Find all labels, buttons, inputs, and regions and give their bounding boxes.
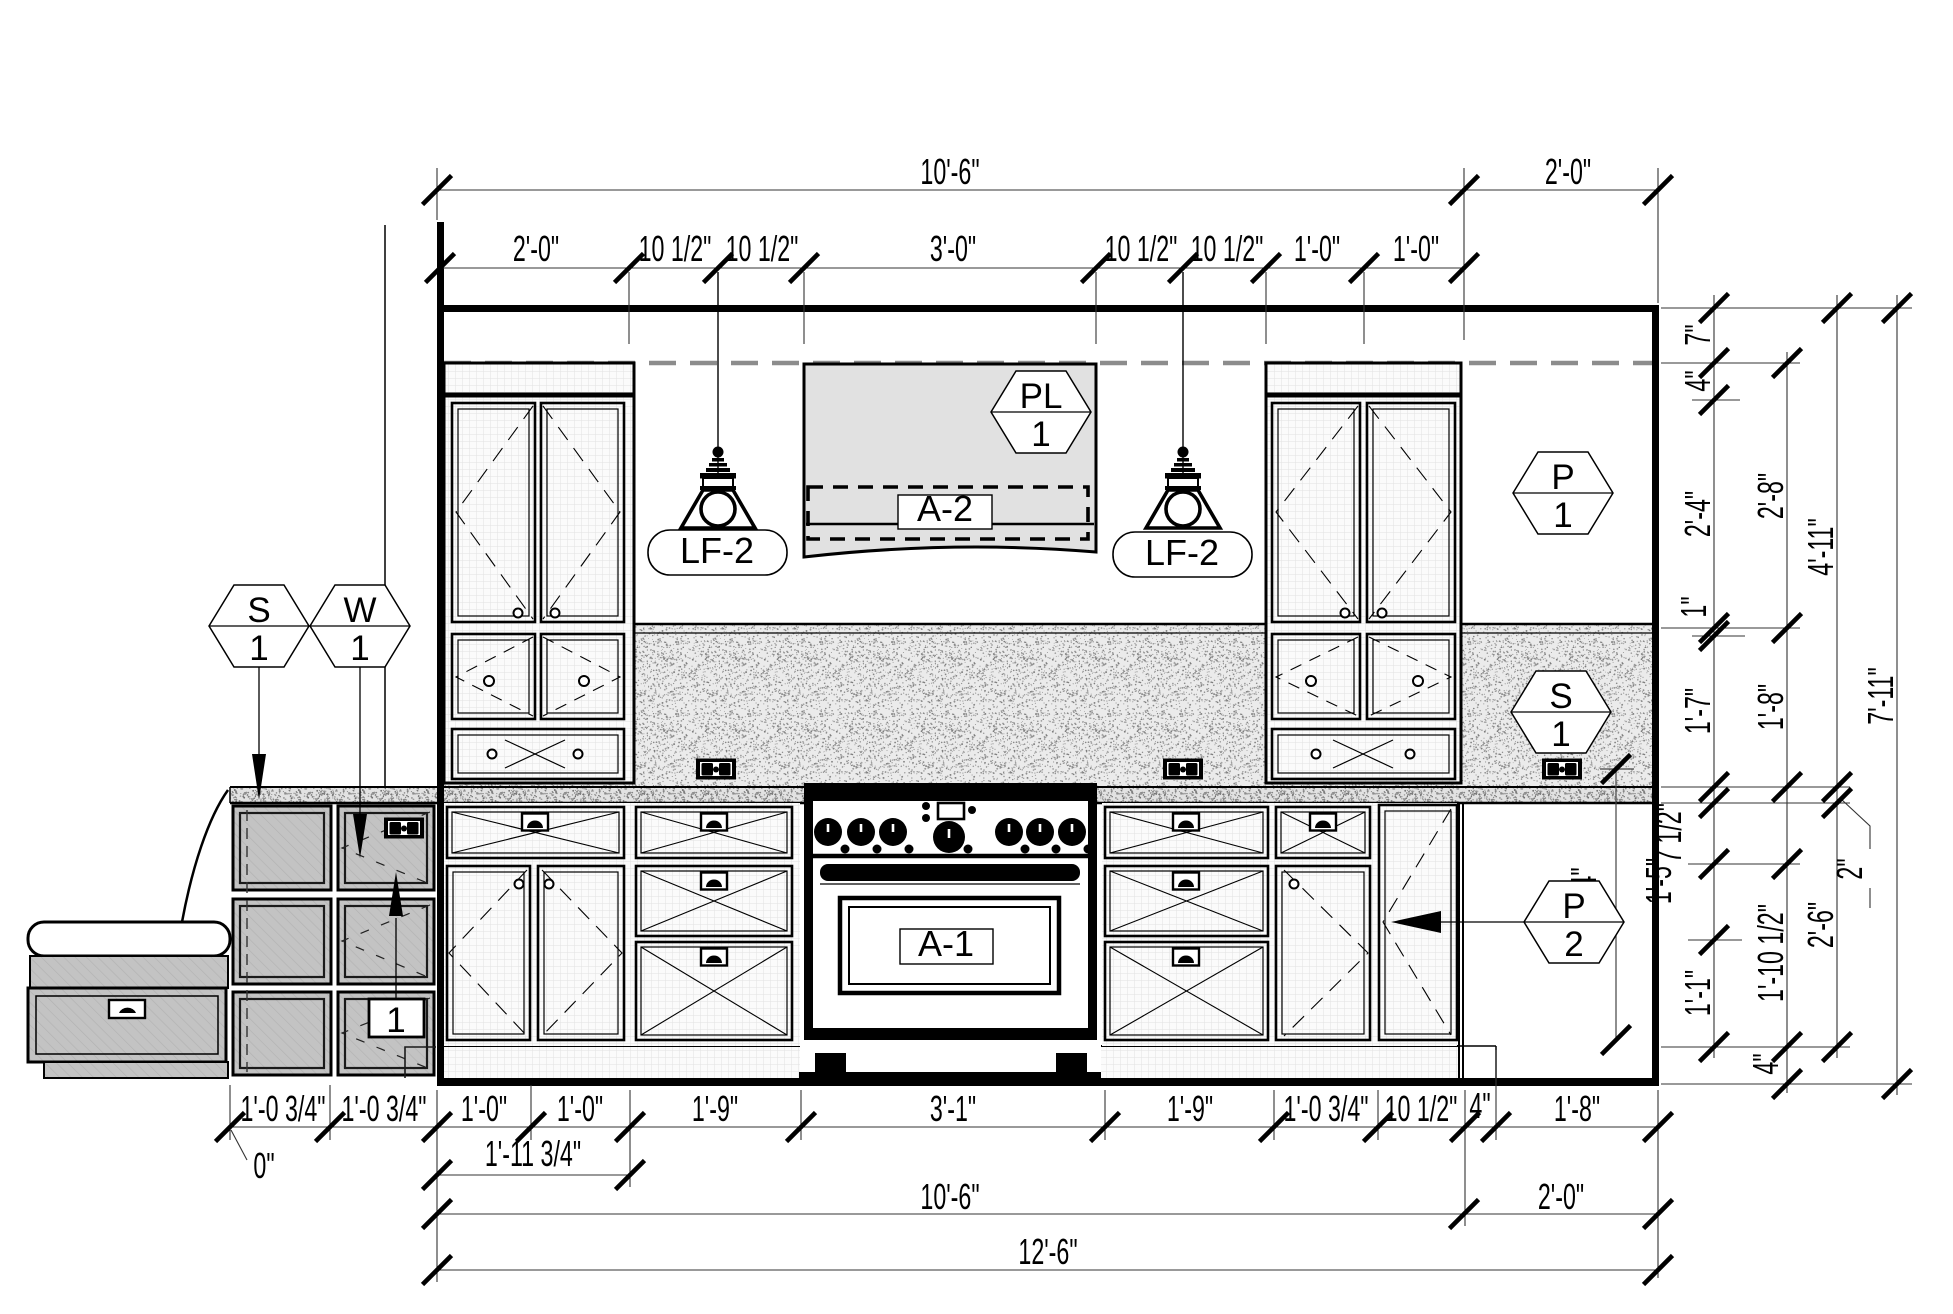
svg-text:7 1/2": 7 1/2"	[1648, 803, 1689, 863]
svg-text:7": 7"	[1677, 324, 1718, 345]
svg-text:S: S	[247, 591, 270, 630]
svg-text:1'-9": 1'-9"	[1167, 1088, 1213, 1129]
svg-text:1'-0": 1'-0"	[557, 1088, 603, 1129]
svg-text:1'-1": 1'-1"	[1677, 970, 1718, 1016]
svg-text:4": 4"	[1745, 1053, 1786, 1074]
svg-text:1'-8": 1'-8"	[1750, 684, 1791, 730]
svg-text:10 1/2": 10 1/2"	[1385, 1088, 1458, 1129]
svg-text:1": 1"	[1673, 596, 1714, 617]
svg-text:10 1/2": 10 1/2"	[726, 228, 799, 269]
svg-text:2'-6": 2'-6"	[1800, 902, 1841, 948]
svg-text:2'-8": 2'-8"	[1750, 473, 1791, 519]
svg-text:10 1/2": 10 1/2"	[639, 228, 712, 269]
svg-text:1'-11 3/4": 1'-11 3/4"	[485, 1133, 581, 1174]
svg-text:PL: PL	[1020, 377, 1063, 416]
svg-text:A-1: A-1	[918, 923, 974, 964]
svg-text:1'-0 3/4": 1'-0 3/4"	[1284, 1088, 1369, 1129]
svg-text:0": 0"	[253, 1145, 274, 1186]
svg-text:LF-2: LF-2	[680, 530, 754, 571]
svg-text:10'-6": 10'-6"	[920, 1176, 979, 1217]
svg-text:1'-7": 1'-7"	[1677, 688, 1718, 734]
svg-text:4'-11": 4'-11"	[1800, 518, 1841, 575]
svg-text:10'-6": 10'-6"	[920, 151, 979, 192]
svg-text:1'-0": 1'-0"	[1393, 228, 1439, 269]
svg-text:LF-2: LF-2	[1145, 532, 1219, 573]
svg-text:12'-6": 12'-6"	[1018, 1231, 1077, 1272]
svg-text:1: 1	[386, 1001, 405, 1040]
svg-text:4": 4"	[1469, 1085, 1490, 1126]
svg-text:10 1/2": 10 1/2"	[1191, 228, 1264, 269]
svg-text:1'-10 1/2": 1'-10 1/2"	[1750, 904, 1791, 1002]
svg-text:3'-1": 3'-1"	[930, 1088, 976, 1129]
svg-text:2'-4": 2'-4"	[1677, 491, 1718, 537]
svg-text:2: 2	[1564, 925, 1583, 964]
svg-text:1'-5": 1'-5"	[1638, 858, 1679, 904]
svg-text:7'-11": 7'-11"	[1860, 667, 1901, 724]
svg-text:1'-0": 1'-0"	[461, 1088, 507, 1129]
svg-text:S: S	[1549, 677, 1572, 716]
svg-text:P: P	[1562, 887, 1585, 926]
svg-text:1: 1	[1553, 496, 1572, 535]
svg-text:1: 1	[350, 629, 369, 668]
svg-text:W: W	[343, 591, 376, 630]
svg-text:A-2: A-2	[917, 488, 973, 529]
svg-text:1'-8": 1'-8"	[1554, 1088, 1600, 1129]
svg-text:1'-9": 1'-9"	[692, 1088, 738, 1129]
svg-text:2'-0": 2'-0"	[1545, 151, 1591, 192]
svg-text:1: 1	[1031, 415, 1050, 454]
svg-text:1'-0 3/4": 1'-0 3/4"	[241, 1088, 326, 1129]
svg-text:1: 1	[1551, 715, 1570, 754]
svg-text:2'-0": 2'-0"	[1538, 1176, 1584, 1217]
svg-text:1'-0 3/4": 1'-0 3/4"	[342, 1088, 427, 1129]
svg-text:P: P	[1551, 458, 1574, 497]
svg-text:10 1/2": 10 1/2"	[1105, 228, 1178, 269]
svg-text:1: 1	[249, 629, 268, 668]
svg-text:2": 2"	[1829, 858, 1870, 879]
svg-text:4": 4"	[1677, 370, 1718, 391]
svg-text:3'-0": 3'-0"	[930, 228, 976, 269]
svg-text:2'-0": 2'-0"	[513, 228, 559, 269]
svg-text:1'-0": 1'-0"	[1294, 228, 1340, 269]
